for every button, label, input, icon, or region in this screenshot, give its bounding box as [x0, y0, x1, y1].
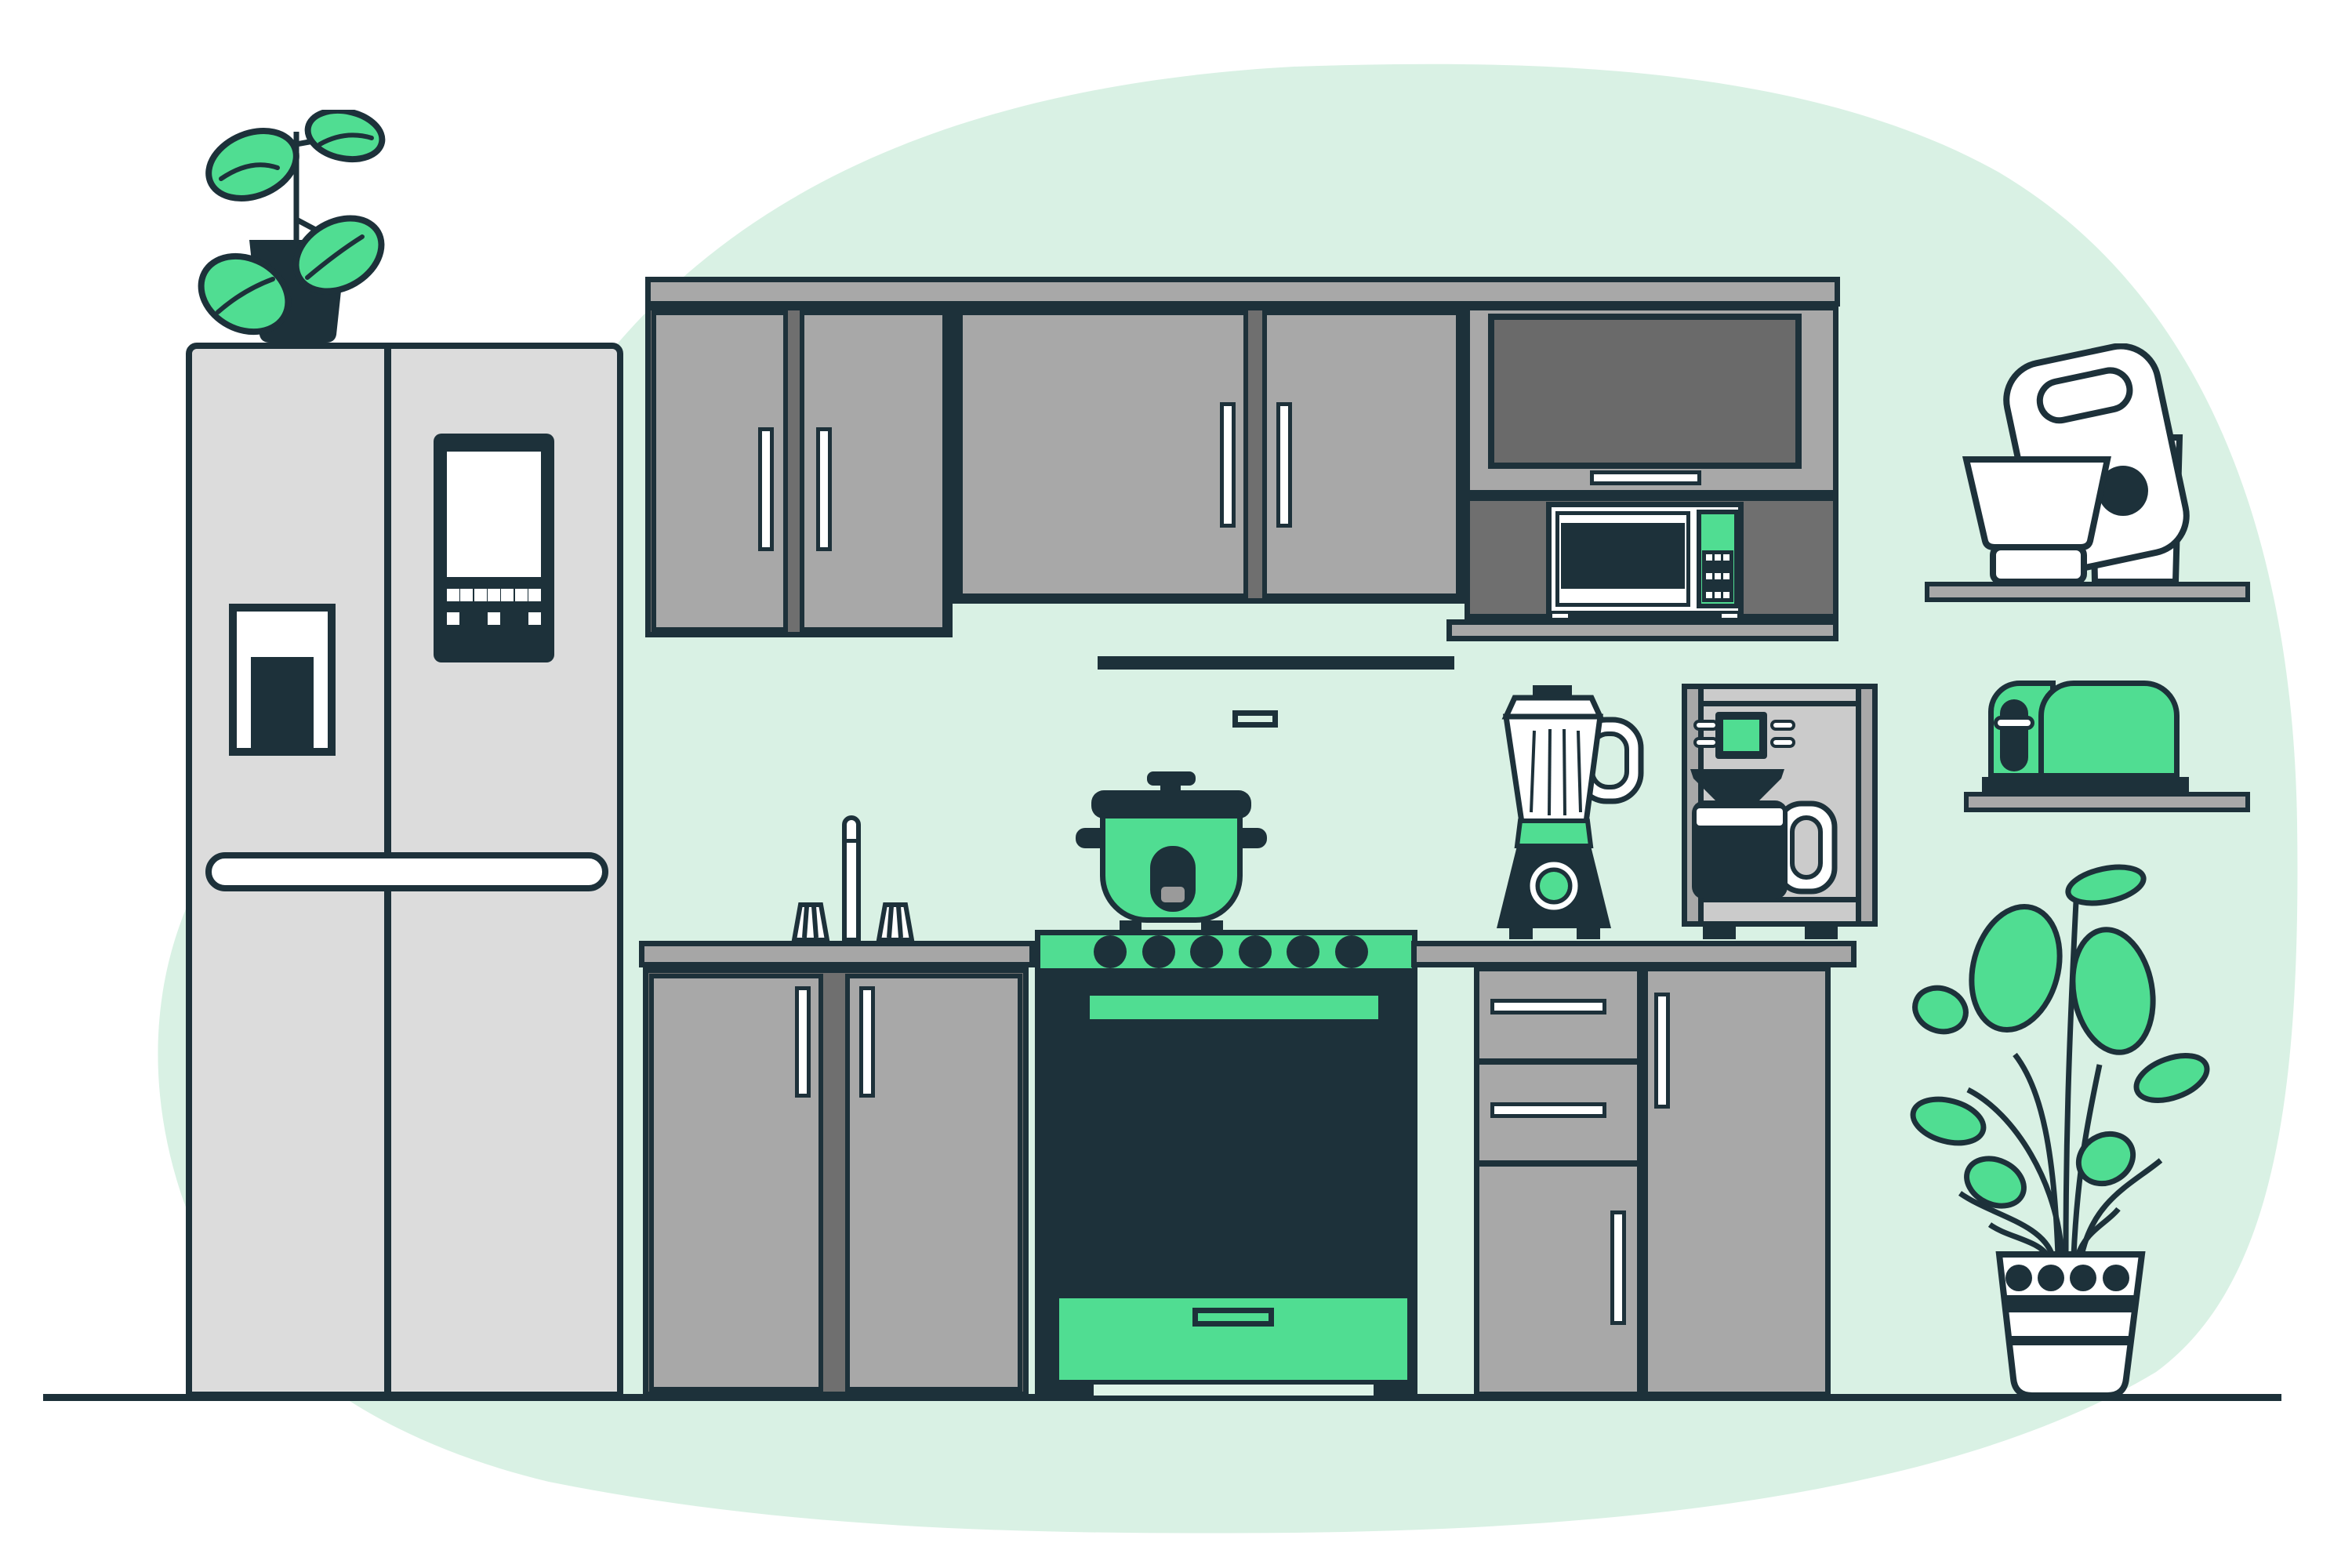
kitchen-illustration — [0, 0, 2352, 1568]
blender-lid — [1506, 698, 1600, 717]
wall-vent — [1232, 710, 1278, 728]
plant-on-fridge — [196, 110, 392, 353]
shelf-upper — [1925, 582, 2250, 602]
faucet-knobs — [788, 900, 917, 942]
toaster — [1982, 681, 2189, 796]
coffee-button — [1693, 720, 1719, 731]
wall-cabinet-middle-door-a — [958, 310, 1248, 598]
drawer-handle — [1490, 1102, 1606, 1118]
cabinet-handle — [1610, 1210, 1626, 1325]
counter-left — [639, 941, 1035, 967]
shelf-lower — [1964, 792, 2250, 812]
cabinet-handle — [758, 427, 774, 551]
microwave-window-glass — [1561, 523, 1685, 589]
microwave-window — [1555, 511, 1690, 607]
coffee-carafe-group — [1678, 764, 1882, 943]
toaster-lever-slot — [2000, 699, 2028, 771]
blender-collar — [1517, 821, 1591, 846]
microwave — [1546, 502, 1744, 616]
cabinet-handle — [1276, 402, 1292, 528]
blender-foot — [1577, 928, 1600, 939]
rice-cooker-foot — [1201, 920, 1223, 931]
oven-drawer — [1056, 1295, 1410, 1383]
faucet-joint — [847, 839, 856, 843]
faucet-knob-left — [794, 905, 827, 940]
carafe-lid-band — [1697, 808, 1783, 826]
fridge-handle-bar — [205, 852, 608, 891]
screen-display — [447, 452, 541, 577]
tv-screen — [1488, 314, 1802, 469]
coffee-button — [1770, 720, 1795, 731]
planter-stripe — [2009, 1336, 2132, 1345]
microwave-keypad — [1702, 550, 1733, 602]
tv-cabinet-handle — [1590, 470, 1701, 485]
coffee-maker-top-seam — [1687, 701, 1872, 706]
cabinet-handle — [1220, 402, 1236, 528]
toaster-body-right — [2038, 681, 2180, 779]
screen-keypad — [447, 589, 541, 625]
oven-handle — [1090, 996, 1378, 1019]
counter-right — [1411, 941, 1857, 967]
oven-drawer-handle — [1192, 1308, 1274, 1327]
blender — [1486, 682, 1650, 941]
stand-mixer — [1952, 343, 2258, 583]
toaster-lever-knob — [1994, 716, 2034, 730]
rice-cooker-foot — [1120, 920, 1142, 931]
drawer-handle — [1490, 999, 1606, 1014]
planter-pot — [1999, 1254, 2142, 1396]
cabinet-handle — [795, 986, 811, 1098]
blender-jar — [1506, 717, 1600, 822]
rice-cooker-window — [1150, 846, 1196, 912]
plant-leaves — [1908, 861, 2213, 1214]
wall-cabinet-cornice — [645, 277, 1840, 307]
coffee-maker-foot — [1703, 927, 1736, 939]
drawer-divider — [1474, 1160, 1642, 1167]
fridge-water-dispenser — [229, 604, 336, 756]
dispenser-side-right — [314, 612, 328, 748]
cabinet-handle — [859, 986, 875, 1098]
cabinet-handle — [816, 427, 832, 551]
dispenser-side-left — [237, 612, 251, 748]
coffee-button — [1693, 737, 1719, 748]
coffee-button — [1770, 737, 1795, 748]
mixer-bowl-base — [1993, 547, 2084, 582]
niche-shelf — [1446, 619, 1838, 641]
planter-stripe — [2004, 1295, 2136, 1312]
fridge-smart-screen — [434, 434, 554, 662]
cabinet-handle — [1654, 993, 1670, 1109]
coffee-maker-foot — [1805, 927, 1838, 939]
range-hood-bar — [1098, 656, 1454, 670]
stove-burner-knobs — [1094, 935, 1368, 969]
faucet-knob-right — [879, 905, 912, 940]
mixer-bowl — [1966, 459, 2107, 547]
base-drawer-unit — [1474, 966, 1642, 1397]
blender-foot — [1509, 928, 1533, 939]
oven-kick-plate — [1094, 1385, 1374, 1396]
coffee-display-screen — [1723, 720, 1759, 751]
base-tall-cabinet — [1642, 966, 1831, 1397]
coffee-funnel — [1690, 769, 1784, 800]
refrigerator — [186, 343, 623, 1398]
rice-cooker-body — [1100, 813, 1243, 923]
floor-plant — [1897, 855, 2313, 1403]
blender-button — [1540, 872, 1568, 900]
drawer-divider — [1474, 1058, 1642, 1065]
rice-cooker-button — [1161, 887, 1185, 902]
dispenser-glass — [251, 612, 314, 657]
rice-cooker — [1076, 771, 1267, 931]
